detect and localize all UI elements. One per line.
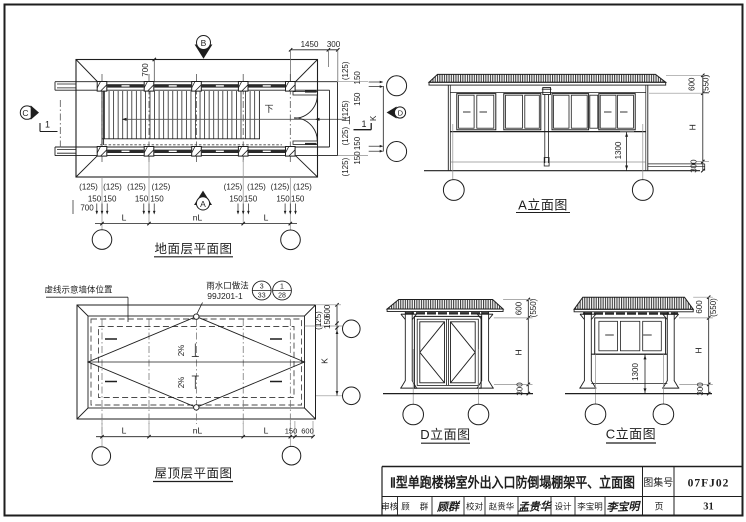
svg-text:虚线示意墙体位置: 虚线示意墙体位置	[44, 285, 113, 295]
svg-text:300: 300	[516, 382, 525, 396]
svg-text:H: H	[688, 124, 698, 130]
svg-text:(125): (125)	[79, 182, 98, 191]
svg-text:L: L	[264, 426, 269, 436]
svg-text:地面层平面图: 地面层平面图	[154, 242, 232, 256]
svg-text:群: 群	[420, 502, 429, 512]
svg-text:150: 150	[323, 315, 332, 329]
svg-text:顾群: 顾群	[436, 500, 461, 514]
svg-text:(125): (125)	[127, 182, 146, 191]
svg-text:300: 300	[327, 40, 341, 49]
svg-text:审核: 审核	[381, 502, 399, 512]
svg-text:150: 150	[244, 194, 258, 203]
svg-text:H: H	[514, 349, 524, 355]
svg-text:(125): (125)	[341, 61, 350, 80]
svg-text:3: 3	[260, 284, 264, 291]
svg-text:李宝明: 李宝明	[606, 500, 641, 514]
svg-text:1450: 1450	[301, 40, 319, 49]
svg-text:A: A	[200, 199, 206, 209]
svg-text:李宝明: 李宝明	[577, 502, 603, 512]
svg-text:150: 150	[150, 194, 164, 203]
svg-text:(125): (125)	[341, 100, 350, 119]
svg-text:设计: 设计	[554, 502, 572, 512]
svg-text:600: 600	[688, 77, 697, 91]
svg-text:600: 600	[301, 427, 314, 436]
svg-text:A立面图: A立面图	[518, 198, 568, 213]
svg-text:(125): (125)	[341, 127, 350, 146]
svg-text:07FJ02: 07FJ02	[688, 478, 730, 490]
svg-text:雨水口做法: 雨水口做法	[206, 280, 249, 290]
svg-text:图集号: 图集号	[643, 476, 673, 489]
svg-text:150: 150	[291, 194, 305, 203]
svg-text:300: 300	[696, 382, 705, 396]
svg-text:150: 150	[285, 427, 298, 436]
svg-text:(125): (125)	[152, 182, 171, 191]
svg-text:页: 页	[654, 502, 663, 512]
svg-text:赵贵华: 赵贵华	[489, 502, 515, 512]
svg-text:150: 150	[229, 194, 243, 203]
svg-text:2%: 2%	[177, 345, 186, 357]
svg-text:C: C	[22, 108, 28, 118]
svg-text:150: 150	[276, 194, 290, 203]
svg-text:33: 33	[258, 293, 266, 300]
svg-text:(550): (550)	[709, 298, 718, 317]
svg-text:(550): (550)	[702, 75, 711, 94]
svg-text:K: K	[369, 115, 378, 121]
svg-text:150: 150	[135, 194, 149, 203]
svg-text:(125): (125)	[341, 157, 350, 176]
svg-text:下: 下	[264, 104, 273, 114]
svg-text:2%: 2%	[177, 377, 186, 389]
svg-text:Ⅱ型单跑楼梯室外出入口防倒塌棚架平、立面图: Ⅱ型单跑楼梯室外出入口防倒塌棚架平、立面图	[390, 475, 635, 491]
svg-text:D立面图: D立面图	[420, 427, 470, 442]
svg-text:150: 150	[103, 194, 117, 203]
svg-text:28: 28	[278, 293, 286, 300]
svg-text:150: 150	[353, 92, 362, 106]
svg-text:(125): (125)	[103, 182, 122, 191]
svg-text:150: 150	[353, 71, 362, 85]
svg-text:L: L	[122, 213, 127, 223]
svg-text:1: 1	[280, 284, 284, 291]
svg-text:150: 150	[88, 194, 102, 203]
svg-text:300: 300	[690, 159, 699, 173]
svg-text:1300: 1300	[631, 363, 640, 381]
svg-text:(550): (550)	[529, 298, 538, 317]
svg-text:150: 150	[353, 136, 362, 150]
svg-text:150: 150	[353, 151, 362, 165]
svg-text:B: B	[201, 38, 207, 48]
svg-text:99J201-1: 99J201-1	[207, 291, 243, 301]
svg-text:K: K	[320, 358, 330, 364]
svg-text:L: L	[264, 213, 269, 223]
svg-text:nL: nL	[193, 426, 203, 436]
svg-text:31: 31	[703, 502, 714, 513]
svg-text:1: 1	[45, 120, 50, 130]
svg-text:700: 700	[141, 63, 150, 77]
svg-text:600: 600	[695, 300, 704, 314]
svg-text:(125): (125)	[247, 182, 266, 191]
svg-text:700: 700	[80, 203, 94, 212]
svg-text:D: D	[398, 109, 404, 118]
svg-text:H: H	[694, 348, 704, 354]
svg-text:(125): (125)	[314, 311, 323, 330]
svg-text:1: 1	[361, 119, 366, 129]
svg-text:(125): (125)	[293, 182, 312, 191]
svg-text:屋顶层平面图: 屋顶层平面图	[154, 467, 232, 481]
svg-text:nL: nL	[193, 213, 203, 223]
svg-text:L: L	[122, 426, 127, 436]
svg-text:600: 600	[515, 301, 524, 315]
svg-text:校对: 校对	[466, 502, 484, 512]
svg-text:顾: 顾	[401, 502, 410, 512]
svg-text:(125): (125)	[271, 182, 290, 191]
svg-text:(125): (125)	[224, 182, 243, 191]
svg-text:孟贵华: 孟贵华	[518, 500, 553, 514]
svg-text:1300: 1300	[614, 141, 623, 159]
svg-text:C立面图: C立面图	[606, 427, 656, 442]
